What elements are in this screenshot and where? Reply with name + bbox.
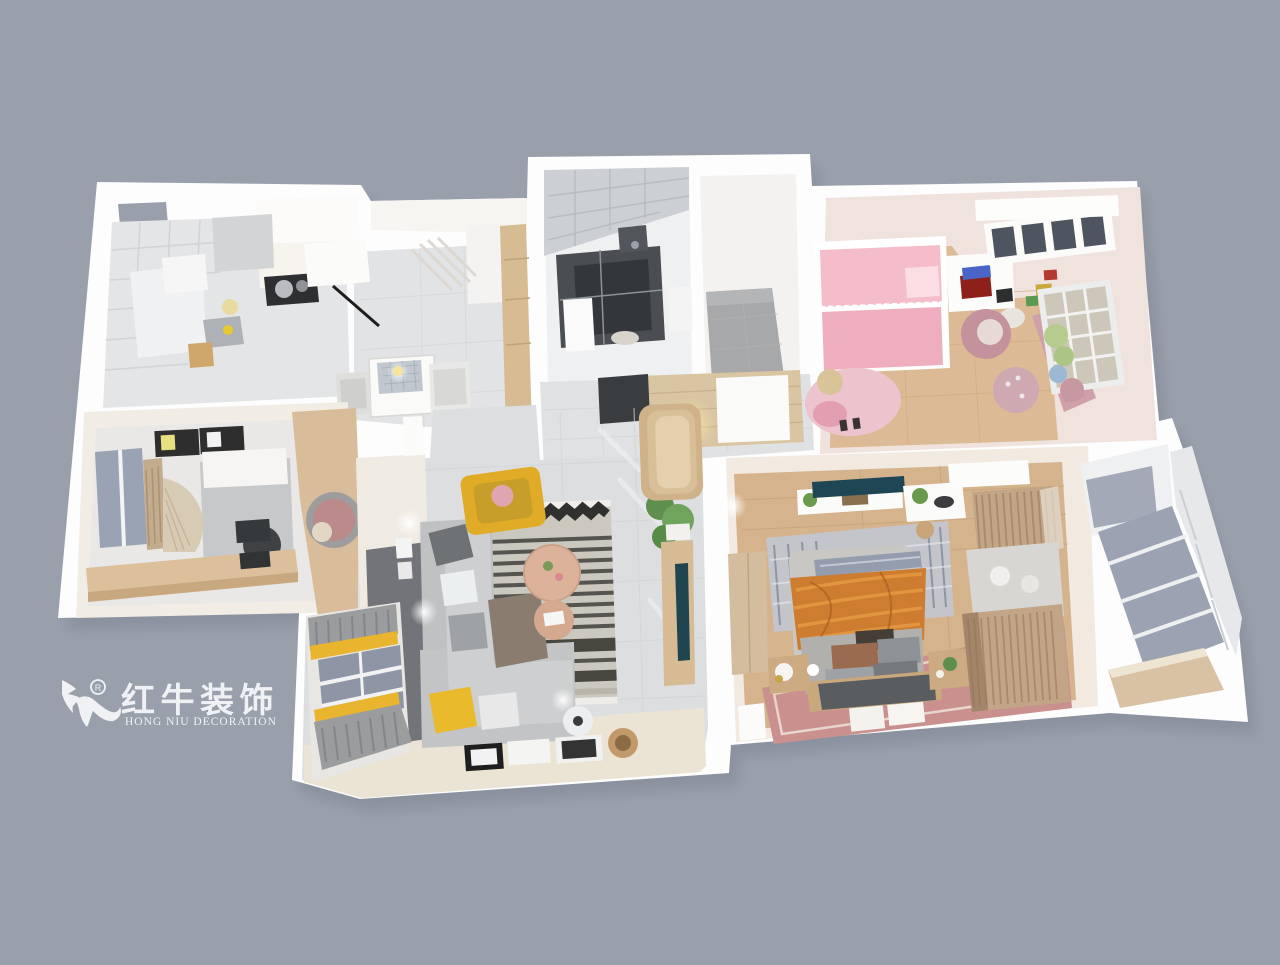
svg-text:HONG NIU DECORATION: HONG NIU DECORATION bbox=[125, 716, 277, 728]
svg-text:R: R bbox=[95, 683, 102, 693]
svg-text:红牛装饰: 红牛装饰 bbox=[121, 682, 279, 720]
